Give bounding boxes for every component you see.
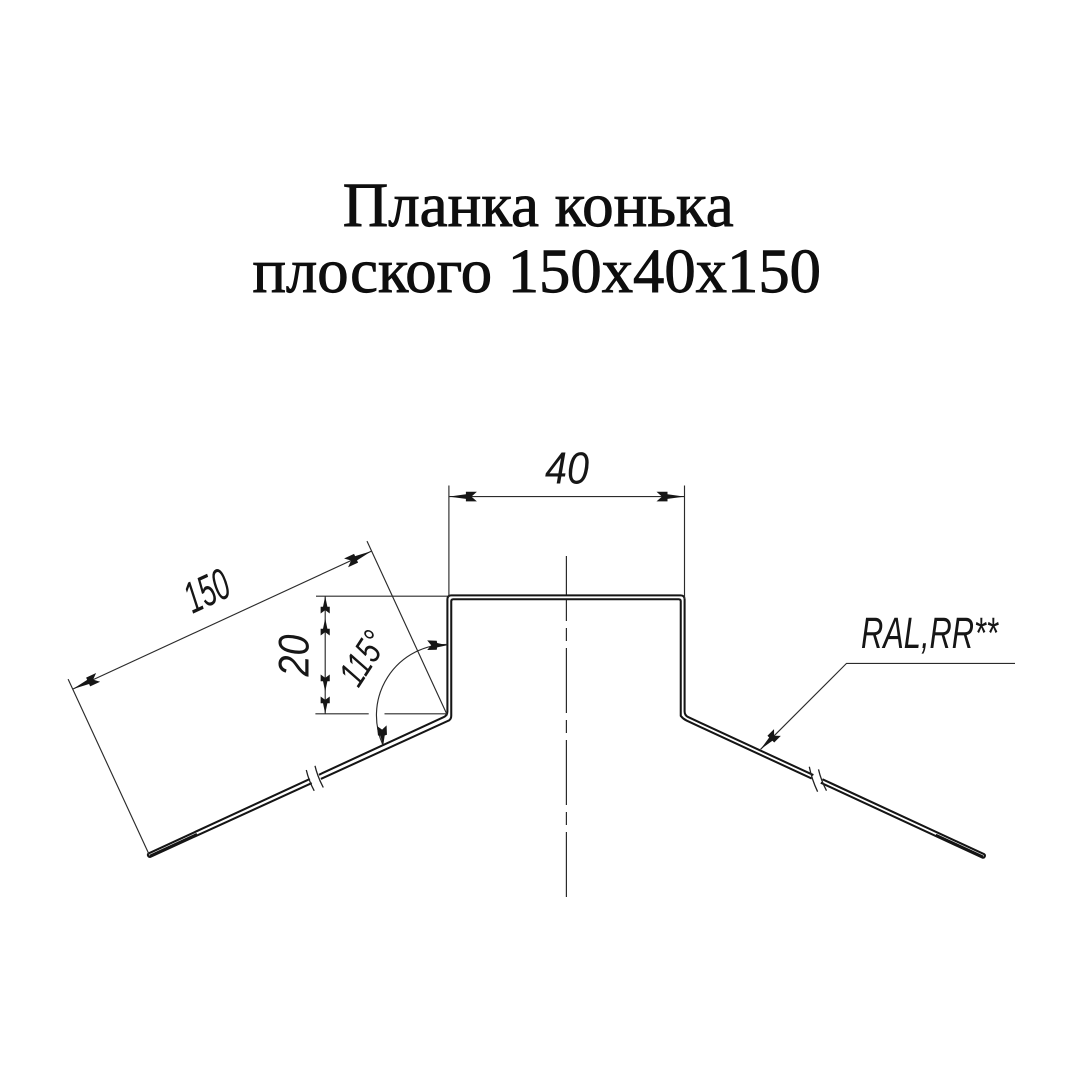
- svg-text:20: 20: [271, 634, 319, 677]
- svg-text:RAL,RR**: RAL,RR**: [861, 609, 999, 658]
- svg-text:Планка конька: Планка конька: [343, 170, 734, 240]
- svg-text:плоского 150х40х150: плоского 150х40х150: [253, 236, 822, 306]
- svg-text:40: 40: [545, 443, 589, 494]
